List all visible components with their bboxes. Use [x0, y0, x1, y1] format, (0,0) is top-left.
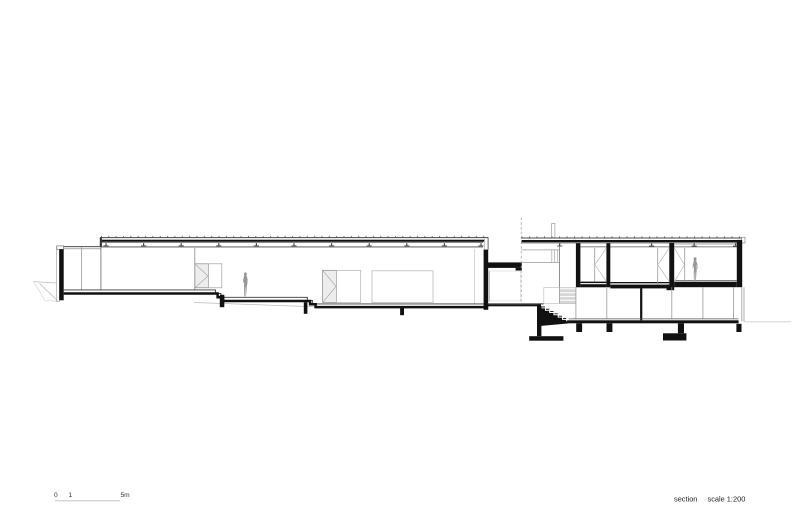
svg-text:scale 1:200: scale 1:200	[708, 495, 746, 504]
svg-text:5m: 5m	[121, 492, 131, 499]
svg-text:0: 0	[54, 492, 58, 499]
svg-text:1: 1	[69, 492, 73, 499]
svg-text:section: section	[674, 495, 697, 504]
